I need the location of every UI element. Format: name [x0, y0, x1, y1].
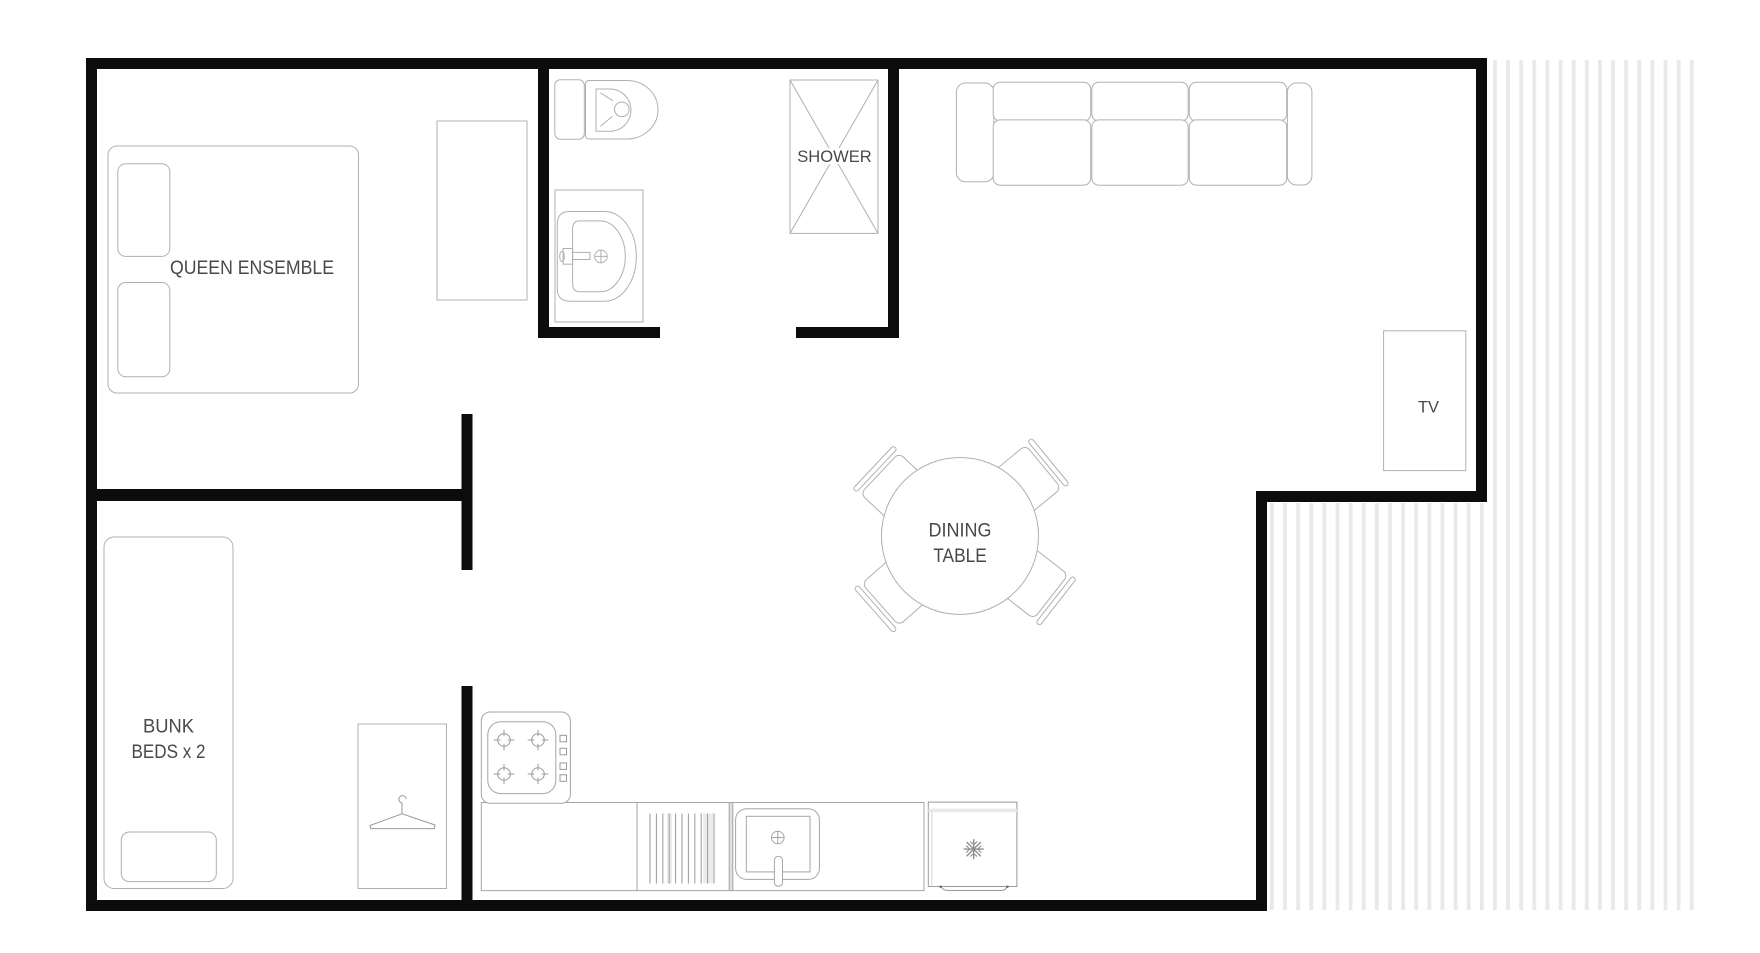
- svg-text:TABLE: TABLE: [933, 546, 987, 567]
- svg-text:TV: TV: [1418, 398, 1440, 417]
- svg-text:SHOWER: SHOWER: [797, 147, 872, 166]
- svg-text:QUEEN ENSEMBLE: QUEEN ENSEMBLE: [170, 258, 334, 279]
- svg-text:DINING: DINING: [929, 521, 992, 542]
- svg-text:BUNK: BUNK: [143, 717, 194, 738]
- svg-text:BEDS x 2: BEDS x 2: [132, 742, 206, 763]
